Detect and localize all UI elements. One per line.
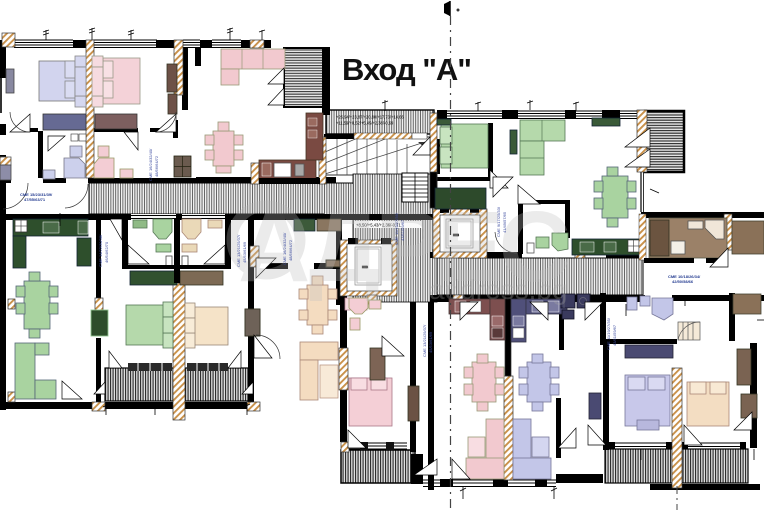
svg-text:СМЕ 9/17/25/33/: СМЕ 9/17/25/33/ bbox=[496, 206, 501, 237]
svg-text:42/50/58/66: 42/50/58/66 bbox=[672, 279, 694, 284]
svg-text:48/56/64/72: 48/56/64/72 bbox=[288, 239, 293, 261]
svg-text:СМЕ 13/21/29/37/: СМЕ 13/21/29/37/ bbox=[422, 324, 427, 357]
svg-text:СМЕ 16/24/32/40/: СМЕ 16/24/32/40/ bbox=[148, 148, 153, 181]
svg-text:СМЕ 16/24/32/40/: СМЕ 16/24/32/40/ bbox=[282, 232, 287, 265]
svg-text:+26,94/+23,87/+20,80/+17,73/+1: +26,94/+23,87/+20,80/+17,73/+14,66 bbox=[336, 115, 404, 120]
svg-text:СМЕ 14/22/30/38/: СМЕ 14/22/30/38/ bbox=[98, 234, 103, 267]
svg-text:СМЕ 13/21/29/37/: СМЕ 13/21/29/37/ bbox=[236, 234, 241, 267]
svg-text:48/56/64/72: 48/56/64/72 bbox=[154, 155, 159, 177]
svg-text:41/49/57/65: 41/49/57/65 bbox=[502, 211, 507, 233]
svg-text:43/51/59/67: 43/51/59/67 bbox=[400, 219, 405, 241]
svg-text:Вход "А": Вход "А" bbox=[342, 52, 472, 87]
svg-text:45/53/61/69: 45/53/61/69 bbox=[242, 241, 247, 263]
svg-text:45/53/61/69: 45/53/61/69 bbox=[428, 331, 433, 353]
svg-text:43/51/59/67: 43/51/59/67 bbox=[612, 324, 617, 346]
svg-text:СМЕ 11/19/27/35/: СМЕ 11/19/27/35/ bbox=[606, 317, 611, 350]
svg-text:47/55/63/71: 47/55/63/71 bbox=[24, 197, 46, 202]
svg-text:address.bg: address.bg bbox=[429, 274, 568, 305]
svg-text:+11,59/+8,52/+5,45/+2,38/-0,69: +11,59/+8,52/+5,45/+2,38/-0,69 bbox=[336, 121, 394, 126]
svg-text:46/54/62/70: 46/54/62/70 bbox=[104, 241, 109, 263]
svg-text:СМЕ 11/19/27/35/: СМЕ 11/19/27/35/ bbox=[394, 212, 399, 245]
